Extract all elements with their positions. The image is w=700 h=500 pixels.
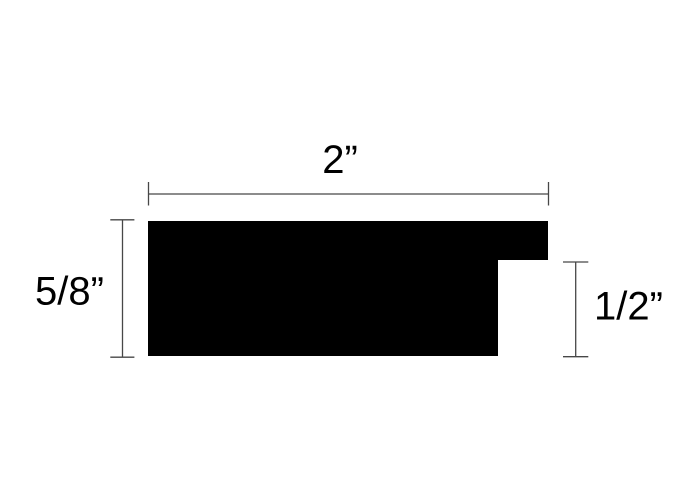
svg-text:2”: 2”: [322, 138, 358, 182]
svg-text:5/8”: 5/8”: [35, 270, 104, 314]
svg-text:1/2”: 1/2”: [594, 285, 663, 329]
